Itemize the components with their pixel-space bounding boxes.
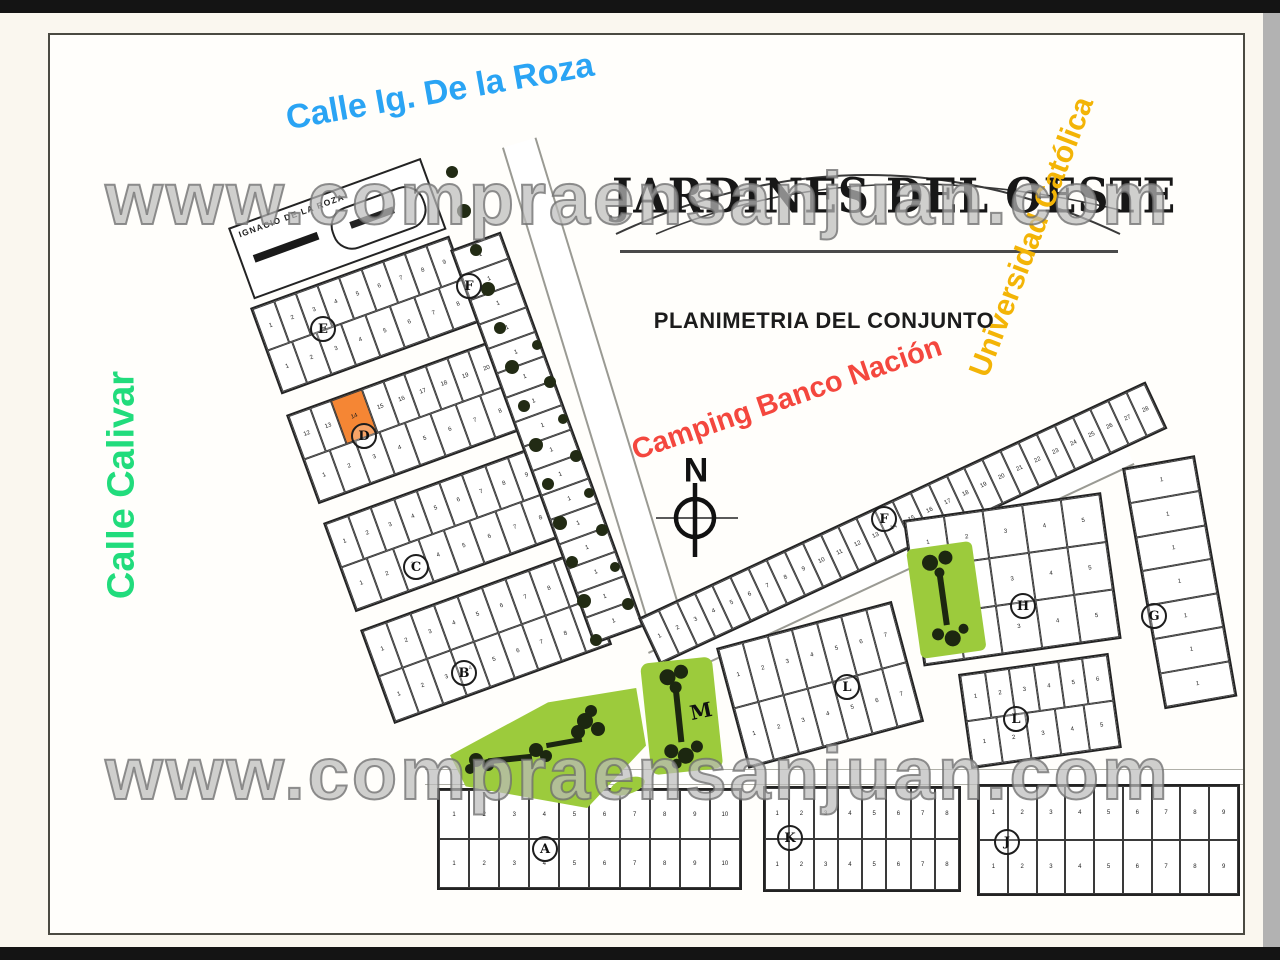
- boulevard-tree-dot: [494, 322, 506, 334]
- block-letter-D: D: [351, 423, 377, 449]
- bottom-black-bar: [0, 947, 1280, 960]
- block-letter-G: G: [1141, 603, 1167, 629]
- boulevard-tree-dot: [505, 360, 519, 374]
- boulevard-tree-dot: [553, 516, 567, 530]
- lot: 3: [499, 839, 529, 888]
- lot: 8: [1180, 840, 1209, 894]
- boulevard-tree-dot: [622, 598, 634, 610]
- lot: 8: [935, 788, 959, 839]
- block-letter-H: H: [1010, 593, 1036, 619]
- boulevard-tree-dot: [457, 204, 471, 218]
- lot: 3: [1037, 840, 1066, 894]
- boulevard-tree-dot: [529, 438, 543, 452]
- lot: 3: [814, 839, 838, 890]
- top-black-bar: [0, 0, 1280, 13]
- lot: 9: [680, 839, 710, 888]
- lot: 7: [1152, 840, 1181, 894]
- lot: 6: [1123, 840, 1152, 894]
- boulevard-tree-dot: [518, 400, 530, 412]
- lot: 3: [983, 505, 1029, 558]
- lot-row: 12345678910: [439, 839, 740, 888]
- block-letter-B: B: [451, 660, 477, 686]
- lot: 4: [1028, 547, 1074, 600]
- lot: 4: [1035, 595, 1081, 648]
- boulevard-tree-dot: [532, 340, 542, 350]
- lot: 5: [1067, 542, 1113, 595]
- lot: 3: [499, 790, 529, 839]
- lot: 5: [862, 839, 886, 890]
- lot: 4: [1065, 840, 1094, 894]
- block-letter-L1: L: [834, 674, 860, 700]
- lot: 9: [1209, 840, 1238, 894]
- lot: 10: [710, 839, 740, 888]
- block-letter-F2: F: [871, 506, 897, 532]
- lot: 7: [1152, 786, 1181, 840]
- boulevard-tree-dot: [570, 450, 582, 462]
- boulevard-tree-dot: [577, 594, 591, 608]
- plan-subtitle: PLANIMETRIA DEL CONJUNTO: [636, 308, 1012, 334]
- lot: 8: [650, 790, 680, 839]
- lot: 5: [1094, 840, 1123, 894]
- boulevard-tree-dot: [446, 166, 458, 178]
- lot: 7: [620, 790, 650, 839]
- lot: 1: [439, 790, 469, 839]
- lot: 10: [710, 790, 740, 839]
- lot: 7: [911, 839, 935, 890]
- block-letter-L2: L: [1003, 706, 1029, 732]
- lot: 8: [935, 839, 959, 890]
- boulevard-tree-dot: [584, 488, 594, 498]
- lot: 9: [1209, 786, 1238, 840]
- lot: 6: [886, 788, 910, 839]
- boulevard-tree-dot: [558, 414, 568, 424]
- block-letter-A: A: [532, 836, 558, 862]
- lot: 8: [1180, 786, 1209, 840]
- lot-row: 123456789: [979, 786, 1238, 840]
- boulevard-tree-dot: [596, 524, 608, 536]
- lot: 5: [1074, 589, 1120, 642]
- block-letter-C: C: [403, 554, 429, 580]
- lot: 6: [1123, 786, 1152, 840]
- lot: 7: [911, 788, 935, 839]
- boulevard-tree-dot: [610, 562, 620, 572]
- lot: 4: [1022, 500, 1068, 553]
- lot: 5: [1084, 701, 1120, 751]
- boulevard-tree-dot: [481, 282, 495, 296]
- screenshot-root: { "frame": { "top_bar_color": "#141414",…: [0, 0, 1280, 960]
- lot: 8: [650, 839, 680, 888]
- block-letter-F1: F: [456, 273, 482, 299]
- lot: 1: [439, 839, 469, 888]
- lot: 4: [838, 788, 862, 839]
- label-calle-calivar: Calle Calivar: [101, 371, 144, 599]
- scrollbar-track[interactable]: [1263, 0, 1280, 960]
- lot: 5: [862, 788, 886, 839]
- lot: 6: [589, 839, 619, 888]
- compass-icon: [648, 480, 742, 596]
- boulevard-tree-dot: [544, 376, 556, 388]
- lot: 4: [838, 839, 862, 890]
- lot: 9: [680, 790, 710, 839]
- block-letter-E: E: [310, 316, 336, 342]
- lot: 7: [620, 839, 650, 888]
- street-bar: [253, 232, 320, 263]
- lot: 2: [469, 790, 499, 839]
- lot: 5: [1094, 786, 1123, 840]
- block-letter-M: M: [688, 697, 715, 725]
- block-letter-K: K: [777, 825, 803, 851]
- boulevard-tree-dot: [542, 478, 554, 490]
- lot: 3: [1037, 786, 1066, 840]
- boulevard-tree-dot: [590, 634, 602, 646]
- lot: 5: [1061, 494, 1107, 547]
- boulevard-tree-dot: [470, 244, 482, 256]
- lot: 6: [1082, 655, 1113, 704]
- lot: 6: [886, 839, 910, 890]
- culdesac-bar: [349, 206, 395, 228]
- boulevard-tree-dot: [566, 556, 578, 568]
- lot: 5: [559, 839, 589, 888]
- lot: 2: [469, 839, 499, 888]
- block-letter-J: J: [994, 829, 1020, 855]
- lot: 3: [814, 788, 838, 839]
- lot: 4: [1065, 786, 1094, 840]
